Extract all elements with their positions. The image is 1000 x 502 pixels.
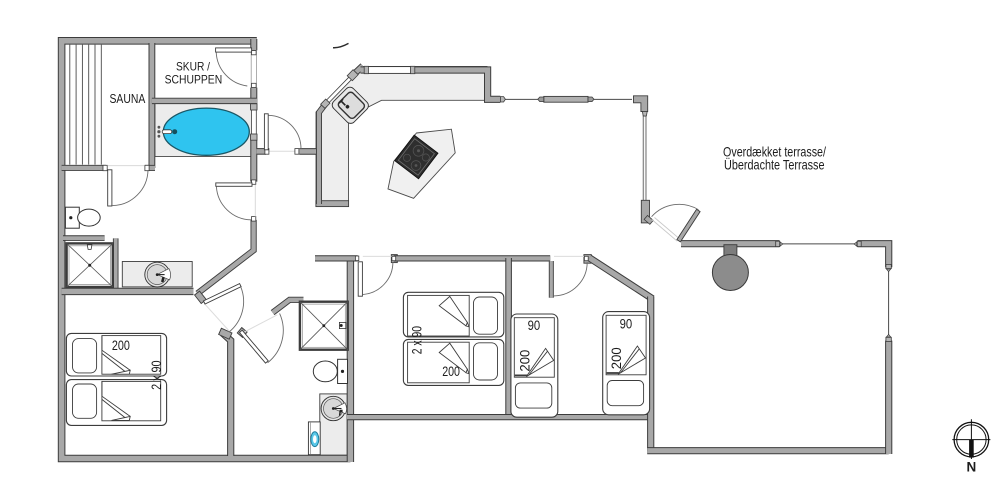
svg-text:200: 200: [112, 337, 130, 353]
svg-text:200: 200: [608, 347, 624, 369]
svg-text:N: N: [967, 459, 977, 474]
svg-text:90: 90: [620, 315, 633, 331]
svg-text:200: 200: [516, 350, 532, 372]
svg-text:90: 90: [528, 317, 541, 333]
svg-text:200: 200: [442, 363, 460, 379]
svg-text:SCHUPPEN: SCHUPPEN: [165, 74, 223, 87]
svg-text:2 x 90: 2 x 90: [408, 326, 424, 354]
svg-text:SAUNA: SAUNA: [110, 91, 146, 106]
svg-text:SKUR /: SKUR /: [176, 60, 211, 73]
svg-text:2 x 90: 2 x 90: [148, 360, 164, 390]
svg-text:Überdachte Terrasse: Überdachte Terrasse: [724, 156, 825, 173]
